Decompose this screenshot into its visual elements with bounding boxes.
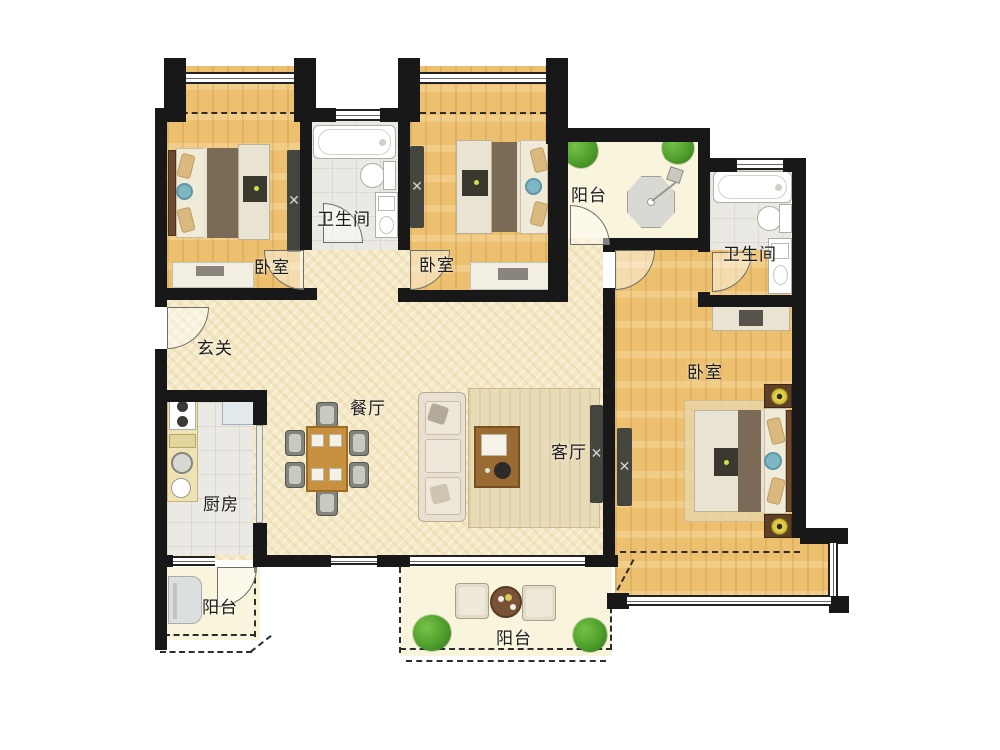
window [410, 555, 585, 566]
wall [155, 349, 167, 567]
bathtub [313, 125, 396, 159]
sofa [418, 392, 466, 522]
vanity [375, 192, 398, 238]
wall [304, 108, 336, 122]
vanity-sink [773, 265, 788, 285]
bed [492, 140, 556, 234]
dining-chair [316, 402, 338, 428]
room-label-entry: 玄关 [197, 334, 233, 359]
dining-chair [349, 430, 369, 456]
wall [377, 555, 410, 567]
window [173, 556, 215, 566]
room-label-bedroom: 卧室 [254, 253, 290, 278]
master-bay-window-floor [792, 538, 833, 598]
lamp [771, 388, 788, 405]
room-label-bedroom: 卧室 [687, 358, 723, 383]
wardrobe-knob [474, 180, 479, 185]
balcony-chair [455, 583, 489, 619]
wall [155, 567, 167, 650]
place-setting [329, 468, 342, 481]
coffee-table [474, 426, 520, 488]
balcony-table [490, 586, 522, 618]
lamp [771, 518, 788, 535]
balcony-dash [399, 567, 402, 653]
wall [792, 158, 806, 538]
room-label-dining: 餐厅 [350, 394, 386, 419]
wall [698, 128, 710, 252]
room-label-balcony: 阳台 [496, 624, 532, 649]
floor-plan: 卧室 卫生间 卧室 阳台 卫生间 卧室 玄关 餐厅 厨房 客厅 阳台 阳台 [0, 0, 1000, 750]
wall [548, 122, 568, 302]
sofa-cushion [425, 439, 461, 473]
sliding-door [256, 425, 263, 523]
toilet-bowl [360, 163, 385, 188]
place-setting [329, 434, 342, 447]
round-cushion [764, 452, 782, 470]
round-cushion [176, 183, 193, 200]
dining-chair [349, 462, 369, 488]
room-label-bathroom: 卫生间 [723, 240, 777, 265]
round-cushion [525, 178, 542, 195]
dresser-item [739, 310, 763, 326]
sink-dial [171, 478, 191, 498]
tv-panel [617, 428, 632, 506]
bathtub [713, 171, 792, 203]
dining-chair [285, 430, 305, 456]
dining-chair [316, 490, 338, 516]
window [186, 72, 294, 84]
wall [155, 288, 317, 300]
burner [177, 401, 188, 412]
wall [603, 288, 615, 555]
room-label-balcony: 阳台 [202, 593, 238, 618]
burner [177, 416, 188, 427]
wall [608, 238, 698, 250]
washing-machine-panel [173, 583, 177, 619]
bay-sill-dash [172, 112, 296, 115]
wall [155, 108, 167, 307]
cup [498, 596, 504, 602]
wall [300, 122, 312, 250]
window [828, 543, 838, 596]
dining-table [306, 426, 348, 492]
bench-item [196, 266, 224, 276]
wardrobe-knob [254, 186, 259, 191]
tv-panel [287, 150, 301, 252]
wall [155, 390, 267, 402]
wall [164, 58, 186, 122]
bed [738, 408, 792, 514]
room-label-bedroom: 卧室 [419, 251, 455, 276]
room-label-balcony: 阳台 [571, 181, 607, 206]
toilet-tank [779, 204, 792, 233]
dining-chair [285, 462, 305, 488]
sink [171, 452, 193, 474]
balcony-dash [160, 651, 252, 654]
bay-sill-dash [620, 551, 800, 554]
vanity-sink [379, 216, 394, 234]
wardrobe-knob [724, 460, 729, 465]
decor [505, 594, 512, 601]
bed-duvet [204, 148, 239, 238]
nightstand [764, 384, 792, 408]
bathtub-drain [775, 184, 782, 191]
wall [710, 158, 737, 172]
cup [510, 604, 516, 610]
wall [155, 555, 173, 567]
window [737, 158, 783, 170]
window [627, 595, 831, 606]
wall [548, 238, 568, 250]
toilet-tank [383, 161, 396, 190]
wall [253, 390, 267, 425]
balcony-chair [522, 585, 556, 621]
teapot [494, 462, 511, 479]
wall [398, 58, 420, 122]
tv-panel [410, 146, 424, 228]
plant [573, 618, 607, 652]
balcony-dash [406, 660, 606, 663]
bench-item [498, 268, 528, 280]
bay-sill-dash [420, 112, 546, 115]
plant [413, 615, 451, 651]
wall [585, 555, 618, 567]
counter-appliance [169, 434, 196, 448]
balcony-dash [164, 634, 256, 637]
room-label-kitchen: 厨房 [203, 490, 239, 515]
wall [398, 290, 568, 302]
window [336, 109, 380, 121]
room-label-bathroom: 卫生间 [317, 205, 371, 230]
room-label-living: 客厅 [551, 438, 587, 463]
window [420, 72, 546, 84]
bathtub-drain [379, 139, 386, 146]
wall [398, 122, 410, 250]
tray [481, 434, 507, 456]
place-setting [311, 434, 324, 447]
wall [253, 555, 331, 567]
bed-headboard [168, 150, 176, 236]
washing-machine [168, 576, 202, 624]
window [331, 556, 377, 565]
bed-duvet [492, 142, 520, 232]
wall [560, 128, 710, 142]
vanity-basin [378, 196, 395, 211]
wall [829, 596, 849, 613]
wall [607, 593, 629, 609]
tv-panel [590, 405, 603, 503]
cup [485, 468, 490, 473]
nightstand [764, 514, 792, 538]
place-setting [311, 468, 324, 481]
wall [698, 295, 792, 307]
bed-duvet [738, 410, 764, 512]
wall [800, 528, 848, 544]
